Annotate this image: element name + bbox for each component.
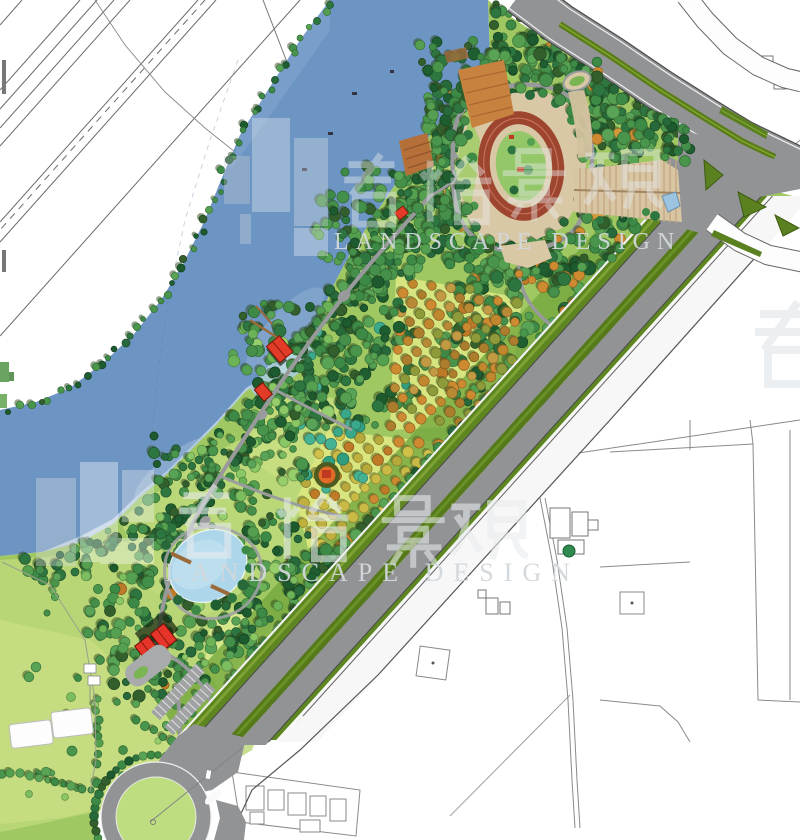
svg-text:LANDSCAPE DESIGN: LANDSCAPE DESIGN xyxy=(334,229,681,255)
svg-text:LANDSCAPE DESIGN: LANDSCAPE DESIGN xyxy=(165,558,580,587)
